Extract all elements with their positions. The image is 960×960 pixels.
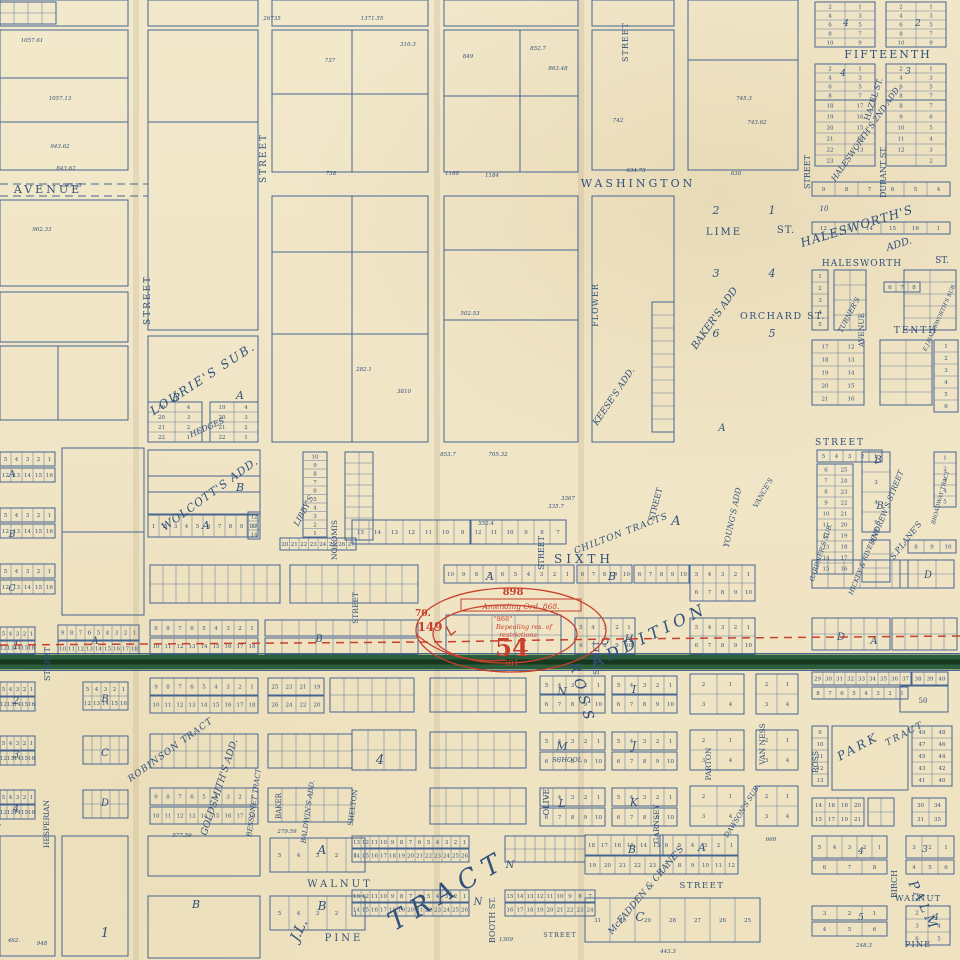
lot-number: 5 xyxy=(695,572,699,578)
map-label: J.L. xyxy=(286,917,311,947)
lot-number: 7 xyxy=(630,702,634,708)
lot-number: 7 xyxy=(649,572,653,578)
lot-number: 13 xyxy=(189,644,196,650)
lot-number: 8 xyxy=(899,32,903,38)
lot-number: 3 xyxy=(16,632,20,638)
lot-number: 2 xyxy=(765,682,769,688)
lot-number: 5 xyxy=(929,85,933,91)
lot-number: 25 xyxy=(272,685,279,691)
map-label: I xyxy=(631,683,637,696)
lot-number: 10 xyxy=(312,454,319,460)
lot-number: 2 xyxy=(37,513,41,519)
map-label: 863.48 xyxy=(548,66,568,72)
map-label: A xyxy=(485,570,494,583)
lot-number: 7 xyxy=(929,94,933,100)
parcel-block xyxy=(62,836,128,956)
lot-number: 9 xyxy=(154,626,158,632)
map-label: FIFTEENTH xyxy=(844,48,932,61)
lot-number: 4 xyxy=(912,865,916,871)
lot-number: 47 xyxy=(919,742,926,748)
map-label: BAKER'S ADD xyxy=(689,286,740,353)
map-label: 843.62 xyxy=(56,166,76,172)
lot-number: 12 xyxy=(0,756,7,762)
map-label: AVENUE xyxy=(857,313,866,348)
lot-number: 1 xyxy=(244,435,248,441)
lot-number: 19 xyxy=(841,534,848,540)
lot-number: 34 xyxy=(869,677,876,683)
map-label: 1 xyxy=(13,641,19,652)
lot-number: 22 xyxy=(219,435,226,441)
lot-number: 11 xyxy=(371,894,378,900)
lot-number: 3 xyxy=(702,702,706,708)
lot-number: 16 xyxy=(46,585,53,591)
map-label: C xyxy=(101,748,109,759)
lot-number: 7 xyxy=(929,32,933,38)
map-label: 630 xyxy=(731,171,742,177)
map-label: 4 xyxy=(839,69,846,79)
lot-number: 3 xyxy=(16,795,20,801)
parcel-block xyxy=(444,0,578,26)
map-label: ST. xyxy=(935,256,949,266)
lot-number: 5 xyxy=(2,632,6,638)
lot-number: 4 xyxy=(214,626,218,632)
lot-number: 27 xyxy=(348,542,355,548)
map-label: GARNSEY xyxy=(652,803,661,843)
highlighted-street-band xyxy=(0,654,960,671)
lot-number: 1 xyxy=(463,840,467,846)
map-label: STREET xyxy=(803,154,812,189)
map-label: A xyxy=(235,389,244,402)
lot-number: 2 xyxy=(37,457,41,463)
lot-number: 7 xyxy=(558,702,562,708)
lot-number: 26 xyxy=(461,908,468,914)
lot-number: 10 xyxy=(595,759,602,765)
lot-number: 8 xyxy=(914,545,918,551)
lot-number: 5 xyxy=(937,937,941,943)
lot-number: 15 xyxy=(35,529,42,535)
lot-number: 19 xyxy=(314,685,321,691)
map-label: 634.73 xyxy=(626,168,646,174)
lot-number: 2 xyxy=(23,795,27,801)
lot-number: 9 xyxy=(462,572,466,578)
map-label: 10 xyxy=(820,205,829,213)
map-label: HALESWORTH xyxy=(822,259,902,269)
map-label: HALESWORTH'S 2ND ADD. xyxy=(829,84,903,184)
map-label: PINE xyxy=(325,933,364,944)
lot-number: 1 xyxy=(597,795,601,801)
lot-number: 8 xyxy=(540,530,544,536)
map-label: A xyxy=(90,636,98,647)
lot-number: 14 xyxy=(517,894,524,900)
lot-number: 19 xyxy=(589,863,596,869)
lot-number: 7 xyxy=(409,840,413,846)
map-label: FLOWER xyxy=(591,283,600,327)
map-label: 1057.13 xyxy=(49,96,72,102)
lot-number: 17 xyxy=(122,647,129,653)
map-label: STREET xyxy=(680,881,725,891)
lot-number: 7 xyxy=(929,104,933,110)
plat-map: 2143658710921436587109214365872143658718… xyxy=(0,0,960,960)
lot-number: 26 xyxy=(719,918,726,924)
map-label: 3810 xyxy=(397,389,411,395)
lot-number: 12 xyxy=(362,840,369,846)
lot-number: 6 xyxy=(823,865,827,871)
lot-number: 13 xyxy=(848,358,855,364)
lot-number: 16 xyxy=(28,756,35,762)
lot-number: 29 xyxy=(644,918,651,924)
map-label: 4 xyxy=(12,804,19,815)
lot-number: 3 xyxy=(540,572,544,578)
map-label: B xyxy=(171,391,180,404)
lot-number: 1 xyxy=(597,683,601,689)
map-label: 1309 xyxy=(499,937,513,943)
lot-number: 25 xyxy=(452,908,459,914)
lot-number: 2 xyxy=(656,739,660,745)
map-label: 462. xyxy=(7,938,20,944)
lot-number: 12 xyxy=(362,894,369,900)
lot-number: 42 xyxy=(939,766,946,772)
lot-number: 24 xyxy=(443,854,450,860)
lot-number: 5 xyxy=(202,685,206,691)
lot-number: 15 xyxy=(823,567,830,573)
lot-number: 16 xyxy=(225,814,232,820)
lot-number: 17 xyxy=(237,814,244,820)
lot-number: 3 xyxy=(929,14,933,20)
lot-number: 12 xyxy=(251,515,258,521)
lot-number: 1 xyxy=(729,738,733,744)
lot-number: 20 xyxy=(604,863,611,869)
lot-number: 21 xyxy=(557,908,564,914)
lot-number: 19 xyxy=(398,854,405,860)
lot-number: 22 xyxy=(841,501,848,507)
lot-number: 1 xyxy=(900,691,904,697)
lot-number: 5 xyxy=(928,865,932,871)
lot-number: 5 xyxy=(858,23,862,29)
lot-number: 12 xyxy=(177,703,184,709)
map-label: 335.7 xyxy=(548,504,564,510)
lot-number: 3 xyxy=(823,911,827,917)
lot-number: 1 xyxy=(122,687,126,693)
lot-number: 8 xyxy=(643,702,647,708)
lot-number: 1 xyxy=(818,274,822,280)
lot-number: 25 xyxy=(841,468,848,474)
lot-number: 1 xyxy=(878,845,882,851)
lot-number: 9 xyxy=(734,643,738,649)
map-label: FIRST xyxy=(0,822,3,835)
lot-number: 7 xyxy=(858,32,862,38)
lot-number: 19 xyxy=(219,405,226,411)
map-label: 282.1 xyxy=(355,367,372,373)
lot-number: 2 xyxy=(238,795,242,801)
lot-number: 1 xyxy=(152,524,156,530)
lot-number: 15 xyxy=(889,226,896,232)
lot-number: 3 xyxy=(858,76,862,82)
lot-number: 8 xyxy=(816,691,820,697)
lot-number: 8 xyxy=(899,104,903,110)
lot-number: 16 xyxy=(46,529,53,535)
lot-number: 5 xyxy=(4,513,8,519)
lot-number: 17 xyxy=(237,703,244,709)
map-label: PARK xyxy=(834,730,882,764)
map-label: ST. xyxy=(777,225,795,236)
lot-number: 21 xyxy=(841,512,848,518)
map-label: B xyxy=(235,481,244,494)
lot-number: 7 xyxy=(178,685,182,691)
lot-number: 8 xyxy=(229,524,233,530)
lot-number: 17 xyxy=(517,908,524,914)
lot-number: 19 xyxy=(827,115,834,121)
map-label: 4 xyxy=(932,913,939,923)
lot-number: 3 xyxy=(929,76,933,82)
lot-number: 13 xyxy=(86,647,93,653)
lot-number: 1 xyxy=(929,67,933,73)
lot-number: 13 xyxy=(189,703,196,709)
lot-number: 22 xyxy=(300,703,307,709)
lot-number: 6 xyxy=(873,927,877,933)
lot-number: 10 xyxy=(945,545,952,551)
lot-number: 9 xyxy=(391,840,395,846)
lot-number: 16 xyxy=(28,702,35,708)
lot-number: 4 xyxy=(214,685,218,691)
map-label: BAKER xyxy=(275,792,283,819)
lot-number: 31 xyxy=(594,918,601,924)
red-annotation-text: "868" xyxy=(494,615,512,623)
lot-number: 18 xyxy=(841,545,848,551)
lot-number: 2 xyxy=(848,911,852,917)
map-label: 3367 xyxy=(561,496,575,502)
map-label: 852.7 xyxy=(530,46,546,52)
lot-number: 1 xyxy=(729,682,733,688)
lot-number: 10 xyxy=(745,590,752,596)
lot-number: 21 xyxy=(416,854,423,860)
lot-number: 46 xyxy=(939,742,946,748)
lot-number: 20 xyxy=(407,854,414,860)
lot-number: 8 xyxy=(400,840,404,846)
lot-number: 3 xyxy=(26,513,30,519)
lot-number: 25 xyxy=(744,918,751,924)
lot-number: 13 xyxy=(817,778,824,784)
lot-number: 12 xyxy=(0,646,7,652)
lot-number: 8 xyxy=(824,490,828,496)
lot-number: 5 xyxy=(579,625,583,631)
lot-number: 8 xyxy=(571,702,575,708)
lot-number: 38 xyxy=(915,677,922,683)
lot-number: 9 xyxy=(929,41,933,47)
parcel-block xyxy=(0,346,128,420)
lot-number: 45 xyxy=(919,754,926,760)
lot-number: 9 xyxy=(154,795,158,801)
lot-number: 20 xyxy=(827,126,834,132)
lot-number: 9 xyxy=(691,863,695,869)
map-label: ROBINSON TRACT xyxy=(126,716,216,785)
lot-number: 8 xyxy=(899,94,903,100)
lot-number: 8 xyxy=(643,815,647,821)
lot-number: 10 xyxy=(153,644,160,650)
lot-number: 11 xyxy=(715,863,722,869)
lot-number: 12 xyxy=(898,148,905,154)
lot-number: 10 xyxy=(680,572,687,578)
lot-number: 18 xyxy=(389,854,396,860)
lot-number: 1 xyxy=(133,631,137,637)
lot-number: 5 xyxy=(278,853,282,859)
lot-number: 21 xyxy=(300,685,307,691)
lot-number: 6 xyxy=(695,643,699,649)
red-annotation-text: 70. xyxy=(415,609,431,619)
lot-number: 8 xyxy=(475,572,479,578)
lot-number: 4 xyxy=(297,911,301,917)
lot-number: 4 xyxy=(436,840,440,846)
map-label: 26735 xyxy=(262,16,281,22)
lot-number: 5 xyxy=(514,572,518,578)
lot-number: 3 xyxy=(912,845,916,851)
lot-number: 43 xyxy=(919,766,926,772)
lot-number: 22 xyxy=(634,863,641,869)
lot-number: 2 xyxy=(818,286,822,292)
lot-number: 12 xyxy=(848,345,855,351)
lot-number: 15 xyxy=(362,908,369,914)
lot-number: 3 xyxy=(858,14,862,20)
lot-number: 11 xyxy=(371,840,378,846)
lot-number: 9 xyxy=(313,463,317,469)
lot-number: 2 xyxy=(23,687,27,693)
lot-number: 6 xyxy=(840,691,844,697)
lot-number: 3 xyxy=(721,572,725,578)
lot-number: 8 xyxy=(912,285,916,291)
map-label: 1 xyxy=(769,204,776,217)
map-label: 3 xyxy=(905,67,911,77)
lot-number: 5 xyxy=(278,911,282,917)
lot-number: 23 xyxy=(827,159,834,165)
lot-number: 16 xyxy=(225,703,232,709)
lot-number: 6 xyxy=(545,759,549,765)
map-label: PARTON xyxy=(704,747,713,780)
lot-number: 3 xyxy=(313,514,317,520)
lot-number: 21 xyxy=(291,542,298,548)
lot-number: 16 xyxy=(28,810,35,816)
lot-number: 4 xyxy=(9,687,13,693)
lot-number: 40 xyxy=(939,778,946,784)
lot-number: 35 xyxy=(934,817,941,823)
lot-number: 2 xyxy=(899,5,903,11)
map-label: 705.32 xyxy=(488,452,508,458)
lot-number: 3 xyxy=(104,687,108,693)
red-arrow xyxy=(446,626,456,635)
map-label: 849 xyxy=(463,54,474,60)
map-label: 552.4 xyxy=(478,521,494,527)
lot-number: 6 xyxy=(579,643,583,649)
map-label: 1186 xyxy=(445,171,459,177)
lot-number: 12 xyxy=(177,814,184,820)
lot-number: 3 xyxy=(929,148,933,154)
map-label: STREET xyxy=(259,133,269,183)
lot-number: 5 xyxy=(545,739,549,745)
map-label: 841.33 xyxy=(62,183,82,189)
lot-number: 13 xyxy=(391,530,398,536)
lot-number: 6 xyxy=(617,815,621,821)
lot-number: 9 xyxy=(818,730,822,736)
plat-map-canvas: 2143658710921436587109214365872143658718… xyxy=(0,0,960,960)
map-label: C xyxy=(635,910,644,924)
map-label: N xyxy=(556,685,567,698)
lot-number: 18 xyxy=(527,908,534,914)
map-label: A xyxy=(670,514,680,529)
lot-number: 8 xyxy=(643,759,647,765)
parcel-block xyxy=(444,196,578,442)
lot-number: 26 xyxy=(338,542,345,548)
map-label: 1371.55 xyxy=(361,16,384,22)
lot-number: 17 xyxy=(857,104,864,110)
lot-number: 10 xyxy=(823,512,830,518)
map-label: 2 xyxy=(914,19,921,29)
lot-number: 21 xyxy=(158,425,165,431)
lot-number: 1 xyxy=(858,5,862,11)
lot-number: 2 xyxy=(888,691,892,697)
lot-number: 15 xyxy=(35,473,42,479)
lot-number: 15 xyxy=(362,854,369,860)
lot-number: 21 xyxy=(822,397,829,403)
lot-number: 1 xyxy=(30,741,34,747)
lot-number: 3 xyxy=(818,298,822,304)
lot-number: 20 xyxy=(314,703,321,709)
lot-number: 5 xyxy=(617,795,621,801)
map-label: BESSONET TRACT xyxy=(245,767,263,838)
lot-number: 4 xyxy=(9,795,13,801)
lot-number: 14 xyxy=(815,803,822,809)
map-label: A xyxy=(717,423,725,434)
lot-number: 2 xyxy=(244,425,248,431)
lot-number: 11 xyxy=(165,814,172,820)
map-label: A xyxy=(697,841,706,854)
lot-number: 5 xyxy=(86,687,90,693)
lot-number: 4 xyxy=(899,76,903,82)
lot-number: 1 xyxy=(929,5,933,11)
lot-number: 31 xyxy=(917,817,924,823)
lot-number: 24 xyxy=(319,542,326,548)
lot-number: 23 xyxy=(649,863,656,869)
map-label: 1 xyxy=(101,926,109,941)
map-label: 279.59 xyxy=(276,829,297,835)
lot-number: 2 xyxy=(734,572,738,578)
map-label: 743.62 xyxy=(747,120,767,126)
map-label: YOUNG'S ADD xyxy=(722,486,744,548)
lot-number: 9 xyxy=(240,524,244,530)
lot-number: 13 xyxy=(251,524,258,530)
lot-number: 9 xyxy=(822,187,826,193)
parcel-blocks xyxy=(0,0,948,958)
lot-number: 12 xyxy=(0,810,7,816)
lot-number: 3 xyxy=(721,625,725,631)
lot-number: 23 xyxy=(434,854,441,860)
map-label: 745.3 xyxy=(736,96,752,102)
lot-number: 6 xyxy=(665,843,669,849)
lot-number: 15 xyxy=(213,644,220,650)
lot-number: 3 xyxy=(571,795,575,801)
lot-number: 2 xyxy=(23,632,27,638)
lot-number: 6 xyxy=(190,626,194,632)
map-label: CHILTON TRACTS xyxy=(573,512,670,557)
map-label: 4 xyxy=(842,19,849,29)
map-label: 443.3 xyxy=(659,949,676,955)
lot-number: 8 xyxy=(166,795,170,801)
lot-number: 10 xyxy=(153,703,160,709)
lot-number: 5 xyxy=(545,683,549,689)
parcel-block xyxy=(592,0,674,26)
red-annotation-text: 898 xyxy=(503,587,524,598)
lot-number: 4 xyxy=(937,187,941,193)
lot-number: 8 xyxy=(660,572,664,578)
lot-number: 6 xyxy=(501,572,505,578)
map-label: BOOTH ST. xyxy=(488,897,497,943)
